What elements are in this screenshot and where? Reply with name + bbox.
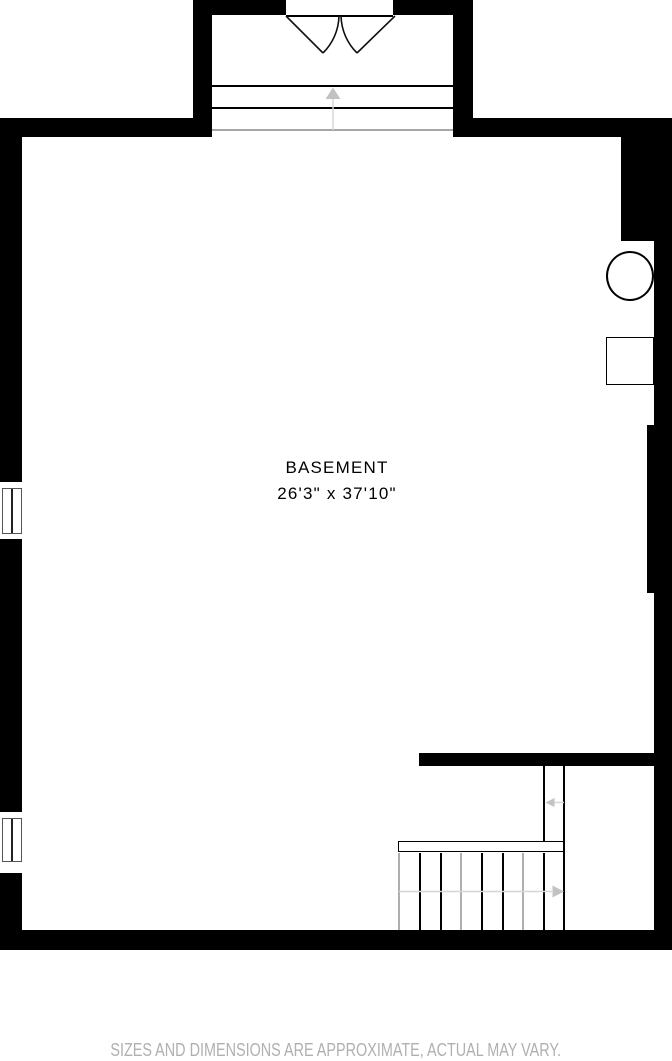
stairs-landing bbox=[398, 841, 564, 852]
entry-step-line bbox=[212, 107, 453, 109]
stair-tread-line bbox=[522, 853, 524, 930]
wall-right-pilaster bbox=[647, 425, 654, 593]
utility-wall-block bbox=[621, 137, 655, 241]
stair-tread-line bbox=[440, 853, 442, 930]
water-heater-icon bbox=[606, 251, 654, 301]
wall-top-right bbox=[453, 118, 672, 137]
entry-right-wall bbox=[453, 0, 473, 137]
room-label-block: BASEMENT 26'3" x 37'10" bbox=[137, 455, 537, 507]
furnace-icon bbox=[606, 337, 654, 385]
room-label: BASEMENT bbox=[137, 455, 537, 481]
window-lower-icon bbox=[0, 812, 23, 873]
wall-right bbox=[654, 137, 672, 950]
stair-tread-line bbox=[460, 853, 462, 930]
wall-bottom bbox=[0, 930, 672, 950]
stairs-upper-run-arrow-icon bbox=[546, 798, 565, 807]
stair-tread-line bbox=[543, 853, 545, 930]
door-opening bbox=[286, 0, 393, 17]
window-mullion bbox=[11, 819, 13, 861]
stair-tread-line bbox=[419, 853, 421, 930]
entry-threshold-line bbox=[212, 129, 453, 131]
entry-top-wall-left bbox=[193, 0, 286, 15]
entry-top-wall-right bbox=[393, 0, 473, 15]
disclaimer-text-inner: SIZES AND DIMENSIONS ARE APPROXIMATE, AC… bbox=[111, 1040, 562, 1061]
entry-left-wall bbox=[193, 0, 212, 137]
disclaimer-text: SIZES AND DIMENSIONS ARE APPROXIMATE, AC… bbox=[0, 1040, 672, 1061]
stair-tread-line bbox=[398, 853, 400, 930]
wall-top-left bbox=[0, 118, 212, 137]
stair-tread-line bbox=[481, 853, 483, 930]
stair-tread-line bbox=[502, 853, 504, 930]
basement-floor-plan: BASEMENT 26'3" x 37'10" SIZES AND DIMENS… bbox=[0, 0, 672, 1061]
stairs-interior-wall bbox=[419, 753, 655, 766]
plan-annotations bbox=[0, 0, 672, 1061]
window-mullion bbox=[11, 489, 13, 533]
room-dimensions: 26'3" x 37'10" bbox=[137, 481, 537, 507]
entry-step-line bbox=[212, 85, 453, 87]
window-upper-icon bbox=[0, 482, 23, 539]
stairs-corridor-line-left bbox=[543, 766, 545, 841]
double-door-swing-icon bbox=[286, 16, 395, 53]
